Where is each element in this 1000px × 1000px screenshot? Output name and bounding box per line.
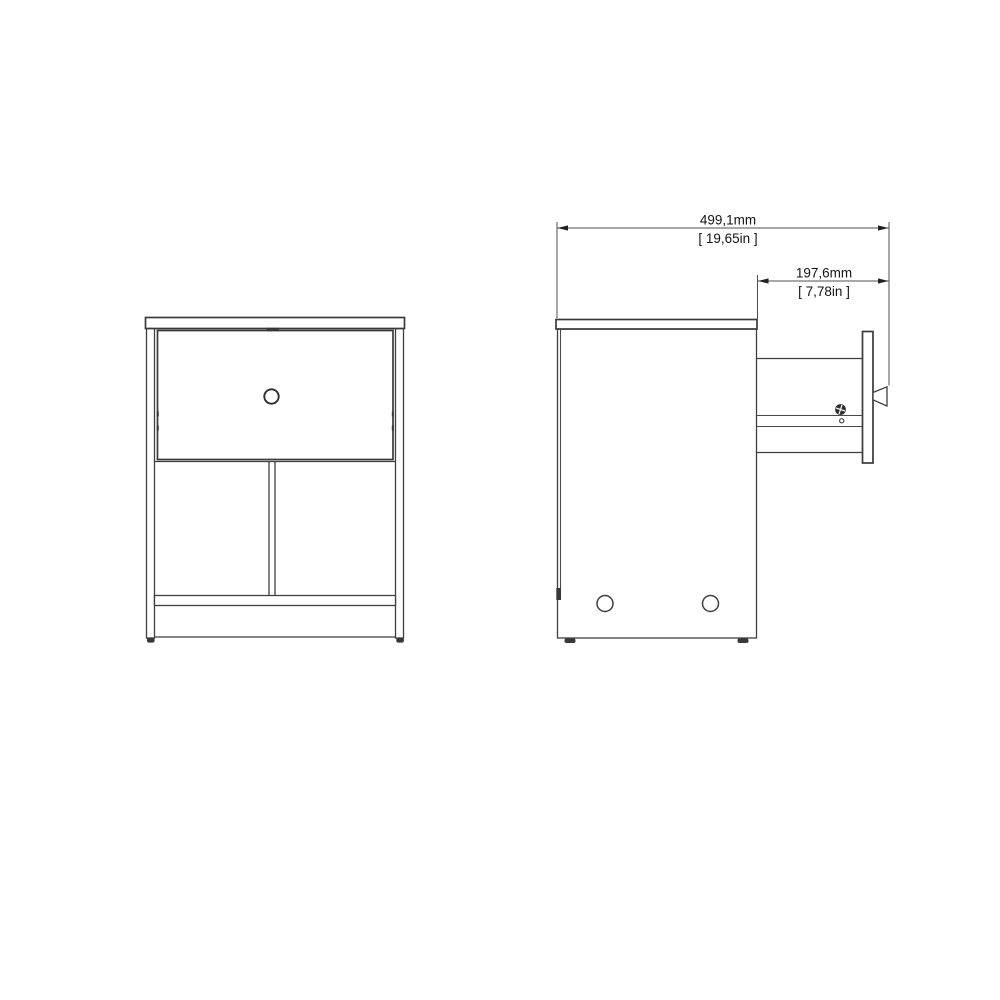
dimension-drawer-extension: 197,6mm [ 7,78in ] xyxy=(758,266,890,320)
front-shelf xyxy=(155,596,396,606)
technical-drawing-canvas: 499,1mm [ 19,65in ] 197,6mm [ 7,78in ] xyxy=(0,0,1000,1000)
dimension-label-metric: 499,1mm xyxy=(700,213,756,228)
arrowhead-left-icon xyxy=(758,278,769,283)
drawing-svg: 499,1mm [ 19,65in ] 197,6mm [ 7,78in ] xyxy=(0,0,1000,1000)
arrowhead-right-icon xyxy=(878,225,889,230)
side-back-foot xyxy=(738,638,749,643)
side-body-panel xyxy=(558,329,757,638)
front-slide-peg xyxy=(392,426,394,431)
drawer-pin-hole xyxy=(840,419,844,423)
arrowhead-left-icon xyxy=(558,225,569,230)
side-front-foot xyxy=(565,638,576,643)
side-panel-edge-cap xyxy=(556,588,561,600)
cam-lock-hole xyxy=(597,596,613,612)
dimension-label-metric: 197,6mm xyxy=(796,266,852,281)
side-drawer-extended xyxy=(757,332,888,464)
arrowhead-right-icon xyxy=(878,278,889,283)
dimension-label-imperial: [ 7,78in ] xyxy=(798,284,850,299)
front-slide-peg xyxy=(392,412,394,417)
dimension-label-imperial: [ 19,65in ] xyxy=(698,231,757,246)
front-top-panel xyxy=(146,318,405,329)
side-view xyxy=(556,320,887,644)
drawer-front-panel-side xyxy=(863,332,874,464)
side-top-panel xyxy=(556,320,757,330)
front-drawer-knob xyxy=(264,389,278,403)
screw-icon xyxy=(834,403,846,415)
drawer-knob-side xyxy=(873,387,887,406)
front-slide-peg xyxy=(157,426,159,431)
front-left-leg xyxy=(147,329,155,639)
front-right-foot xyxy=(396,638,404,643)
front-right-leg xyxy=(396,329,404,639)
front-slide-peg xyxy=(157,412,159,417)
front-left-foot xyxy=(147,638,155,643)
cam-lock-hole xyxy=(703,596,719,612)
front-top-bracket xyxy=(267,328,280,331)
front-view xyxy=(146,318,405,643)
